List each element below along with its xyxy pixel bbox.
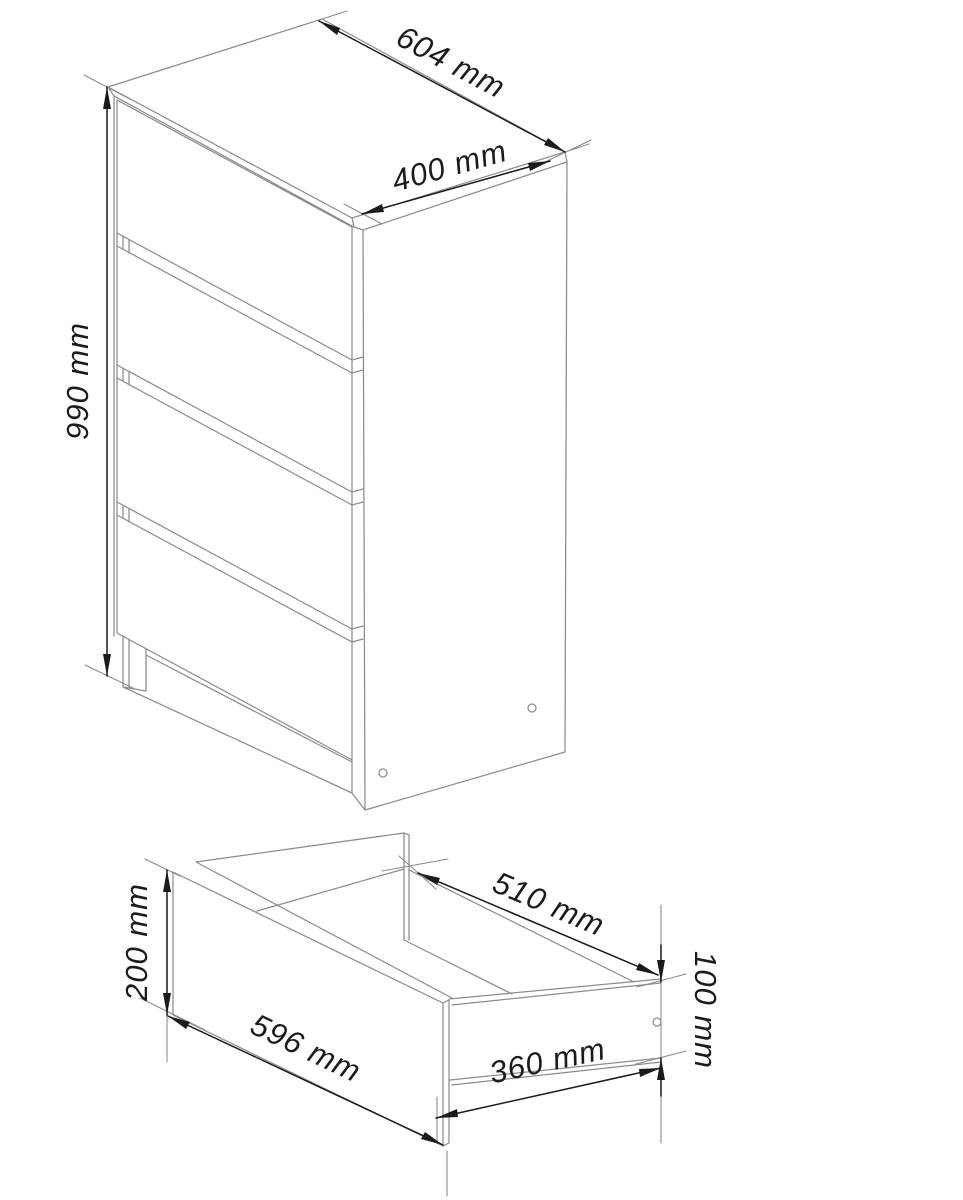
arrowhead	[544, 138, 565, 152]
dimension-label-drawer-front-height: 200 mm	[119, 883, 154, 1002]
arrowhead	[362, 204, 384, 214]
arrowhead	[163, 870, 171, 892]
arrowhead	[436, 1109, 458, 1118]
technical-drawing-page: 604 mm 400 mm 990 mm 200 mm	[0, 0, 963, 1200]
dimension-cabinet-height: 990 mm	[60, 87, 111, 676]
dimension-label-cabinet-height: 990 mm	[60, 322, 95, 440]
dimension-drawer-depth: 510 mm	[418, 865, 658, 975]
drawer-extension-lines	[140, 856, 686, 1196]
dimension-cabinet-depth: 400 mm	[362, 133, 550, 214]
dimension-drawer-side-height: 100 mm	[657, 945, 723, 1096]
dimension-label-drawer-bottom-width: 360 mm	[486, 1031, 609, 1090]
arrowhead	[421, 1132, 443, 1145]
runner-hole	[653, 1018, 661, 1026]
dimension-drawer-bottom-width: 360 mm	[436, 1031, 661, 1118]
technical-drawing: 604 mm 400 mm 990 mm 200 mm	[0, 0, 963, 1200]
arrowhead	[636, 963, 658, 975]
cabinet-view: 604 mm 400 mm 990 mm	[60, 11, 591, 810]
cabinet-extension-lines	[84, 11, 591, 688]
dimension-drawer-front-height: 200 mm	[119, 870, 171, 1015]
arrowhead	[639, 1068, 661, 1077]
drawer-outline	[173, 833, 661, 1146]
cam-hole	[379, 769, 387, 777]
dimension-drawer-front-width: 596 mm	[168, 1007, 443, 1145]
arrowhead	[103, 654, 111, 676]
dimension-cabinet-width: 604 mm	[319, 19, 565, 152]
arrowhead	[163, 993, 171, 1015]
dimension-label-drawer-front-width: 596 mm	[245, 1007, 367, 1089]
dimension-label-drawer-side-height: 100 mm	[688, 951, 723, 1069]
drawer-view: 200 mm 596 mm 510 mm 100 mm	[119, 833, 723, 1196]
cam-hole	[528, 704, 536, 712]
dimension-label-drawer-depth: 510 mm	[488, 865, 610, 943]
